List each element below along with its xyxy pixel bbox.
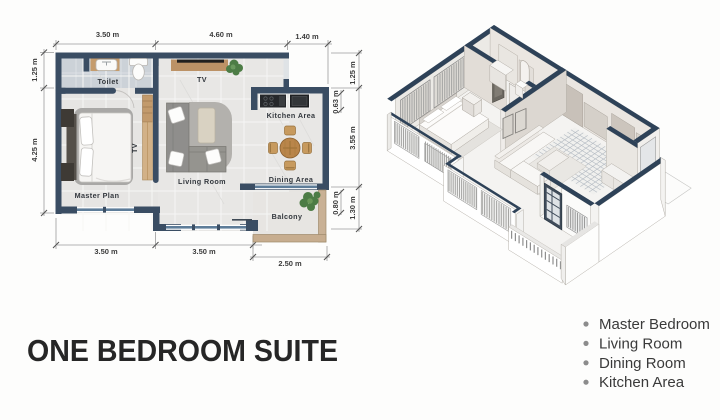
svg-text:3.55 m: 3.55 m xyxy=(348,126,357,150)
svg-text:Dining Area: Dining Area xyxy=(269,175,314,184)
svg-text:Kitchen Area: Kitchen Area xyxy=(267,111,316,120)
svg-text:ONE BEDROOM SUITE: ONE BEDROOM SUITE xyxy=(27,333,338,368)
svg-text:1.25 m: 1.25 m xyxy=(348,61,357,85)
svg-text:4.60 m: 4.60 m xyxy=(209,30,233,39)
svg-text:4.25 m: 4.25 m xyxy=(30,138,39,162)
svg-text:Balcony: Balcony xyxy=(272,212,303,221)
svg-text:TV: TV xyxy=(197,75,207,84)
svg-text:0.80 m: 0.80 m xyxy=(331,191,340,215)
svg-text:1.25 m: 1.25 m xyxy=(30,58,39,82)
svg-text:3.50 m: 3.50 m xyxy=(96,30,120,39)
svg-text:Dining Room: Dining Room xyxy=(599,355,686,372)
svg-text:1.30 m: 1.30 m xyxy=(348,196,357,220)
svg-text:Toilet: Toilet xyxy=(97,77,118,86)
svg-text:2.50 m: 2.50 m xyxy=(278,259,302,268)
svg-text:Kitchen Area: Kitchen Area xyxy=(599,374,685,391)
svg-text:TV: TV xyxy=(130,143,139,153)
svg-text:3.50 m: 3.50 m xyxy=(192,247,216,256)
svg-text:Master Bedroom: Master Bedroom xyxy=(599,316,710,333)
svg-text:Living Room: Living Room xyxy=(599,335,682,352)
svg-text:0.63 m: 0.63 m xyxy=(331,90,340,114)
svg-text:Living Room: Living Room xyxy=(178,177,226,186)
svg-text:3.50 m: 3.50 m xyxy=(94,247,118,256)
svg-text:1.40 m: 1.40 m xyxy=(295,32,319,41)
svg-text:Master Plan: Master Plan xyxy=(75,191,120,200)
